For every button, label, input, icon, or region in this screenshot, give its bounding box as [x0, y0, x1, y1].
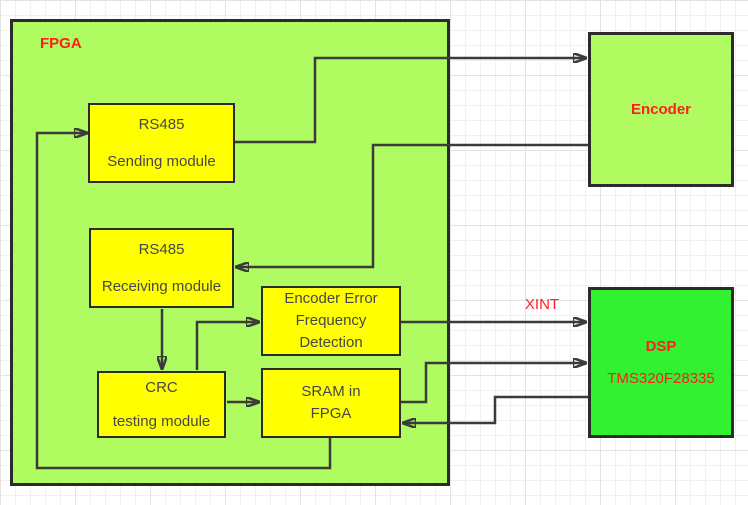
fpga-label: FPGA — [40, 35, 82, 52]
rs485-receiving-line1: RS485 — [139, 239, 185, 260]
sram-line1: SRAM in — [301, 381, 360, 403]
crc-line2: testing module — [113, 411, 211, 432]
node-encoder: Encoder — [588, 32, 734, 187]
rs485-receiving-line2: Receiving module — [102, 276, 221, 297]
node-encoder-error-frequency-detection: Encoder Error Frequency Detection — [261, 286, 401, 356]
dsp-part-number: TMS320F28335 — [607, 370, 715, 387]
sram-line2: FPGA — [311, 403, 352, 425]
node-rs485-sending-module: RS485 Sending module — [88, 103, 235, 183]
error-detection-line1: Encoder Error — [284, 288, 377, 310]
encoder-label: Encoder — [631, 101, 691, 118]
rs485-sending-line2: Sending module — [107, 151, 215, 172]
node-sram-in-fpga: SRAM in FPGA — [261, 368, 401, 438]
diagram-canvas: FPGA RS485 Sending module RS485 Receivin… — [0, 0, 748, 505]
rs485-sending-line1: RS485 — [139, 114, 185, 135]
error-detection-line3: Detection — [299, 332, 362, 354]
node-rs485-receiving-module: RS485 Receiving module — [89, 228, 234, 308]
node-dsp: DSP TMS320F28335 — [588, 287, 734, 438]
crc-line1: CRC — [145, 377, 178, 398]
error-detection-line2: Frequency — [296, 310, 367, 332]
dsp-label: DSP — [646, 338, 677, 355]
xint-signal-label: XINT — [502, 296, 582, 313]
node-crc-testing-module: CRC testing module — [97, 371, 226, 438]
